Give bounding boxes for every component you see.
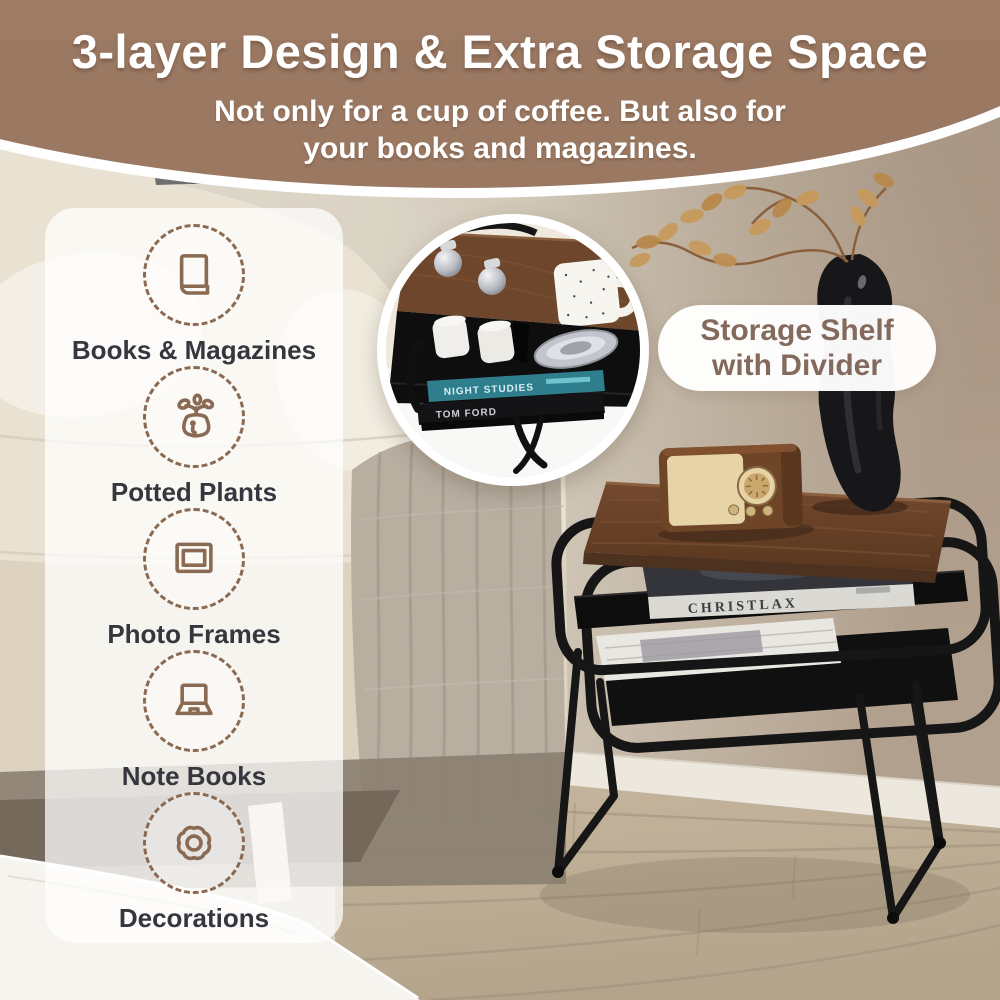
sidebar-item-label: Note Books	[122, 761, 266, 792]
page-title: 3-layer Design & Extra Storage Space	[0, 24, 1000, 79]
product-infographic: CHRISTLAX	[0, 0, 1000, 1000]
vintage-radio	[656, 443, 815, 544]
callout-line-1: Storage Shelf	[700, 313, 893, 348]
book-icon	[143, 224, 245, 326]
laptop-icon	[143, 650, 245, 752]
sidebar-item-label: Decorations	[119, 903, 269, 934]
sidebar-item-books-magazines: Books & Magazines	[45, 224, 343, 366]
shelf-divider	[511, 321, 529, 363]
shelf-closeup-photo: NIGHT STUDIES TOM FORD	[386, 223, 640, 477]
callout-line-2: with Divider	[712, 348, 882, 383]
photo-frame-icon	[143, 508, 245, 610]
sidebar-item-label: Potted Plants	[111, 477, 277, 508]
subtitle-line-2: your books and magazines.	[0, 130, 1000, 167]
sidebar-item-label: Books & Magazines	[72, 335, 316, 366]
flower-icon	[143, 792, 245, 894]
shelf-closeup-inset: NIGHT STUDIES TOM FORD	[377, 214, 649, 486]
subtitle-line-1: Not only for a cup of coffee. But also f…	[0, 93, 1000, 130]
potted-plant-icon	[143, 366, 245, 468]
storage-shelf-callout: Storage Shelf with Divider	[658, 305, 936, 391]
sidebar-item-photo-frames: Photo Frames	[45, 508, 343, 650]
sidebar-item-decorations: Decorations	[45, 792, 343, 934]
page-subtitle: Not only for a cup of coffee. But also f…	[0, 93, 1000, 167]
sidebar-item-note-books: Note Books	[45, 650, 343, 792]
sidebar-item-potted-plants: Potted Plants	[45, 366, 343, 508]
header-text: 3-layer Design & Extra Storage Space Not…	[0, 0, 1000, 167]
feature-sidebar: Books & Magazines Potted Plants	[45, 208, 343, 943]
sidebar-item-label: Photo Frames	[107, 619, 280, 650]
